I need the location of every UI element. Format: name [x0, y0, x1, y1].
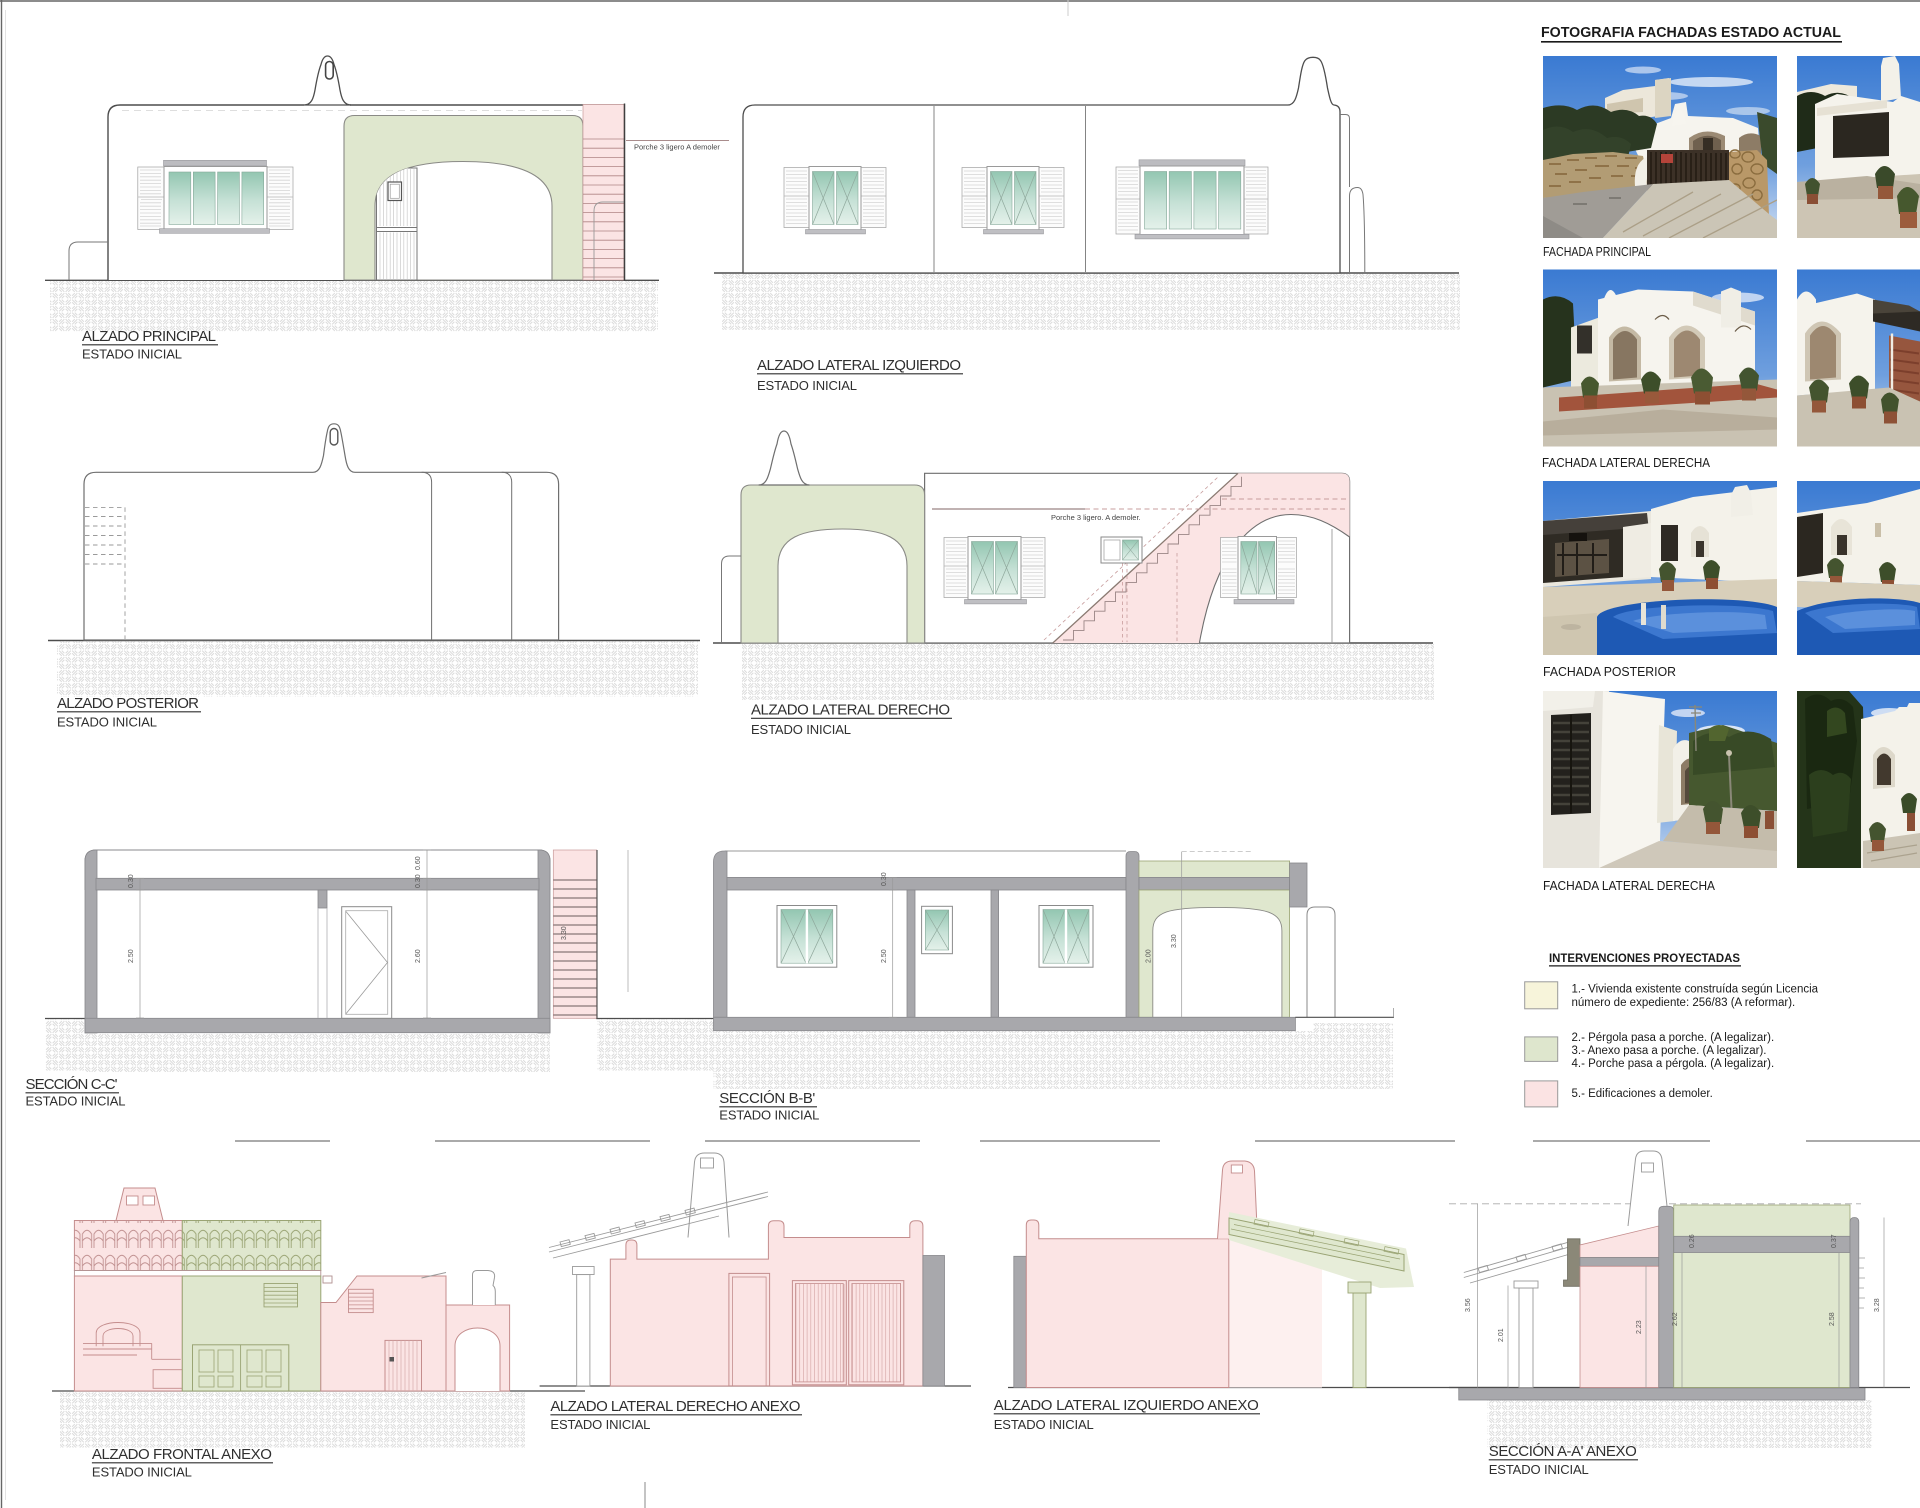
svg-text:SECCIÓN A-A' ANEXO: SECCIÓN A-A' ANEXO — [1489, 1443, 1637, 1460]
svg-text:2.50: 2.50 — [128, 949, 135, 963]
svg-text:FACHADA PRINCIPAL: FACHADA PRINCIPAL — [1543, 244, 1651, 259]
svg-text:0.30: 0.30 — [881, 872, 888, 886]
svg-text:ESTADO INICIAL: ESTADO INICIAL — [1489, 1462, 1589, 1477]
svg-text:ALZADO LATERAL IZQUIERDO: ALZADO LATERAL IZQUIERDO — [757, 357, 961, 374]
svg-text:3.28: 3.28 — [1874, 1298, 1881, 1312]
svg-text:Porche 3 ligero A demoler: Porche 3 ligero A demoler — [634, 143, 720, 152]
svg-text:Porche 3 ligero. A demoler.: Porche 3 ligero. A demoler. — [1051, 513, 1141, 522]
svg-text:2.00: 2.00 — [1146, 949, 1153, 963]
svg-text:ALZADO LATERAL DERECHO ANEXO: ALZADO LATERAL DERECHO ANEXO — [550, 1398, 800, 1415]
svg-text:ESTADO INICIAL: ESTADO INICIAL — [82, 347, 182, 362]
svg-text:2.60: 2.60 — [415, 949, 422, 963]
svg-text:3.30: 3.30 — [1171, 934, 1178, 948]
svg-text:ESTADO INICIAL: ESTADO INICIAL — [92, 1465, 192, 1480]
svg-text:ALZADO LATERAL IZQUIERDO ANEX: ALZADO LATERAL IZQUIERDO ANEXO — [994, 1397, 1259, 1414]
svg-text:2.23: 2.23 — [1636, 1320, 1643, 1334]
svg-text:ESTADO INICIAL: ESTADO INICIAL — [751, 722, 851, 737]
svg-text:1.- Vivienda existente constru: 1.- Vivienda existente construída según … — [1572, 984, 1819, 996]
svg-text:0.26: 0.26 — [1689, 1234, 1696, 1248]
svg-text:FOTOGRAFIA FACHADAS ESTADO ACT: FOTOGRAFIA FACHADAS ESTADO ACTUAL — [1541, 25, 1841, 41]
svg-text:0.60: 0.60 — [415, 856, 422, 870]
svg-text:ESTADO INICIAL: ESTADO INICIAL — [550, 1417, 650, 1432]
svg-text:FACHADA LATERAL DERECHA: FACHADA LATERAL DERECHA — [1543, 878, 1715, 893]
svg-text:FACHADA POSTERIOR: FACHADA POSTERIOR — [1543, 664, 1676, 679]
svg-text:0.30: 0.30 — [128, 874, 135, 888]
svg-text:2.62: 2.62 — [1672, 1312, 1679, 1326]
svg-text:ESTADO INICIAL: ESTADO INICIAL — [757, 378, 857, 393]
svg-text:5.- Edificaciones a demoler.: 5.- Edificaciones a demoler. — [1572, 1088, 1713, 1100]
svg-text:ESTADO INICIAL: ESTADO INICIAL — [57, 715, 157, 730]
svg-text:ESTADO INICIAL: ESTADO INICIAL — [994, 1417, 1094, 1432]
svg-text:ALZADO POSTERIOR: ALZADO POSTERIOR — [57, 695, 199, 712]
svg-text:ALZADO LATERAL DERECHO: ALZADO LATERAL DERECHO — [751, 702, 950, 719]
svg-text:2.58: 2.58 — [1829, 1312, 1836, 1326]
svg-text:ALZADO FRONTAL ANEXO: ALZADO FRONTAL ANEXO — [92, 1446, 272, 1463]
svg-text:número de expediente: 256/83 (: número de expediente: 256/83 (A reformar… — [1572, 997, 1796, 1009]
svg-text:ESTADO INICIAL: ESTADO INICIAL — [26, 1094, 126, 1109]
svg-text:0.30: 0.30 — [415, 874, 422, 888]
svg-text:2.01: 2.01 — [1498, 1328, 1505, 1342]
svg-text:0.37: 0.37 — [1831, 1234, 1838, 1248]
svg-text:INTERVENCIONES PROYECTADAS: INTERVENCIONES PROYECTADAS — [1549, 951, 1740, 965]
svg-text:2.- Pérgola pasa a porche. (A: 2.- Pérgola pasa a porche. (A legalizar)… — [1572, 1032, 1775, 1044]
svg-text:3.56: 3.56 — [1465, 1298, 1472, 1312]
svg-text:2.50: 2.50 — [881, 949, 888, 963]
svg-text:FACHADA LATERAL DERECHA: FACHADA LATERAL DERECHA — [1542, 455, 1710, 470]
svg-text:ALZADO PRINCIPAL: ALZADO PRINCIPAL — [82, 328, 216, 345]
svg-text:SECCIÓN B-B': SECCIÓN B-B' — [719, 1090, 815, 1107]
svg-text:3.30: 3.30 — [561, 926, 568, 940]
svg-text:SECCIÓN C-C': SECCIÓN C-C' — [26, 1076, 118, 1093]
svg-text:4.- Porche pasa a pérgola. (A: 4.- Porche pasa a pérgola. (A legalizar)… — [1572, 1058, 1775, 1070]
svg-text:ESTADO INICIAL: ESTADO INICIAL — [719, 1108, 819, 1123]
svg-text:3.- Anexo pasa a porche. (A le: 3.- Anexo pasa a porche. (A legalizar). — [1572, 1045, 1767, 1057]
